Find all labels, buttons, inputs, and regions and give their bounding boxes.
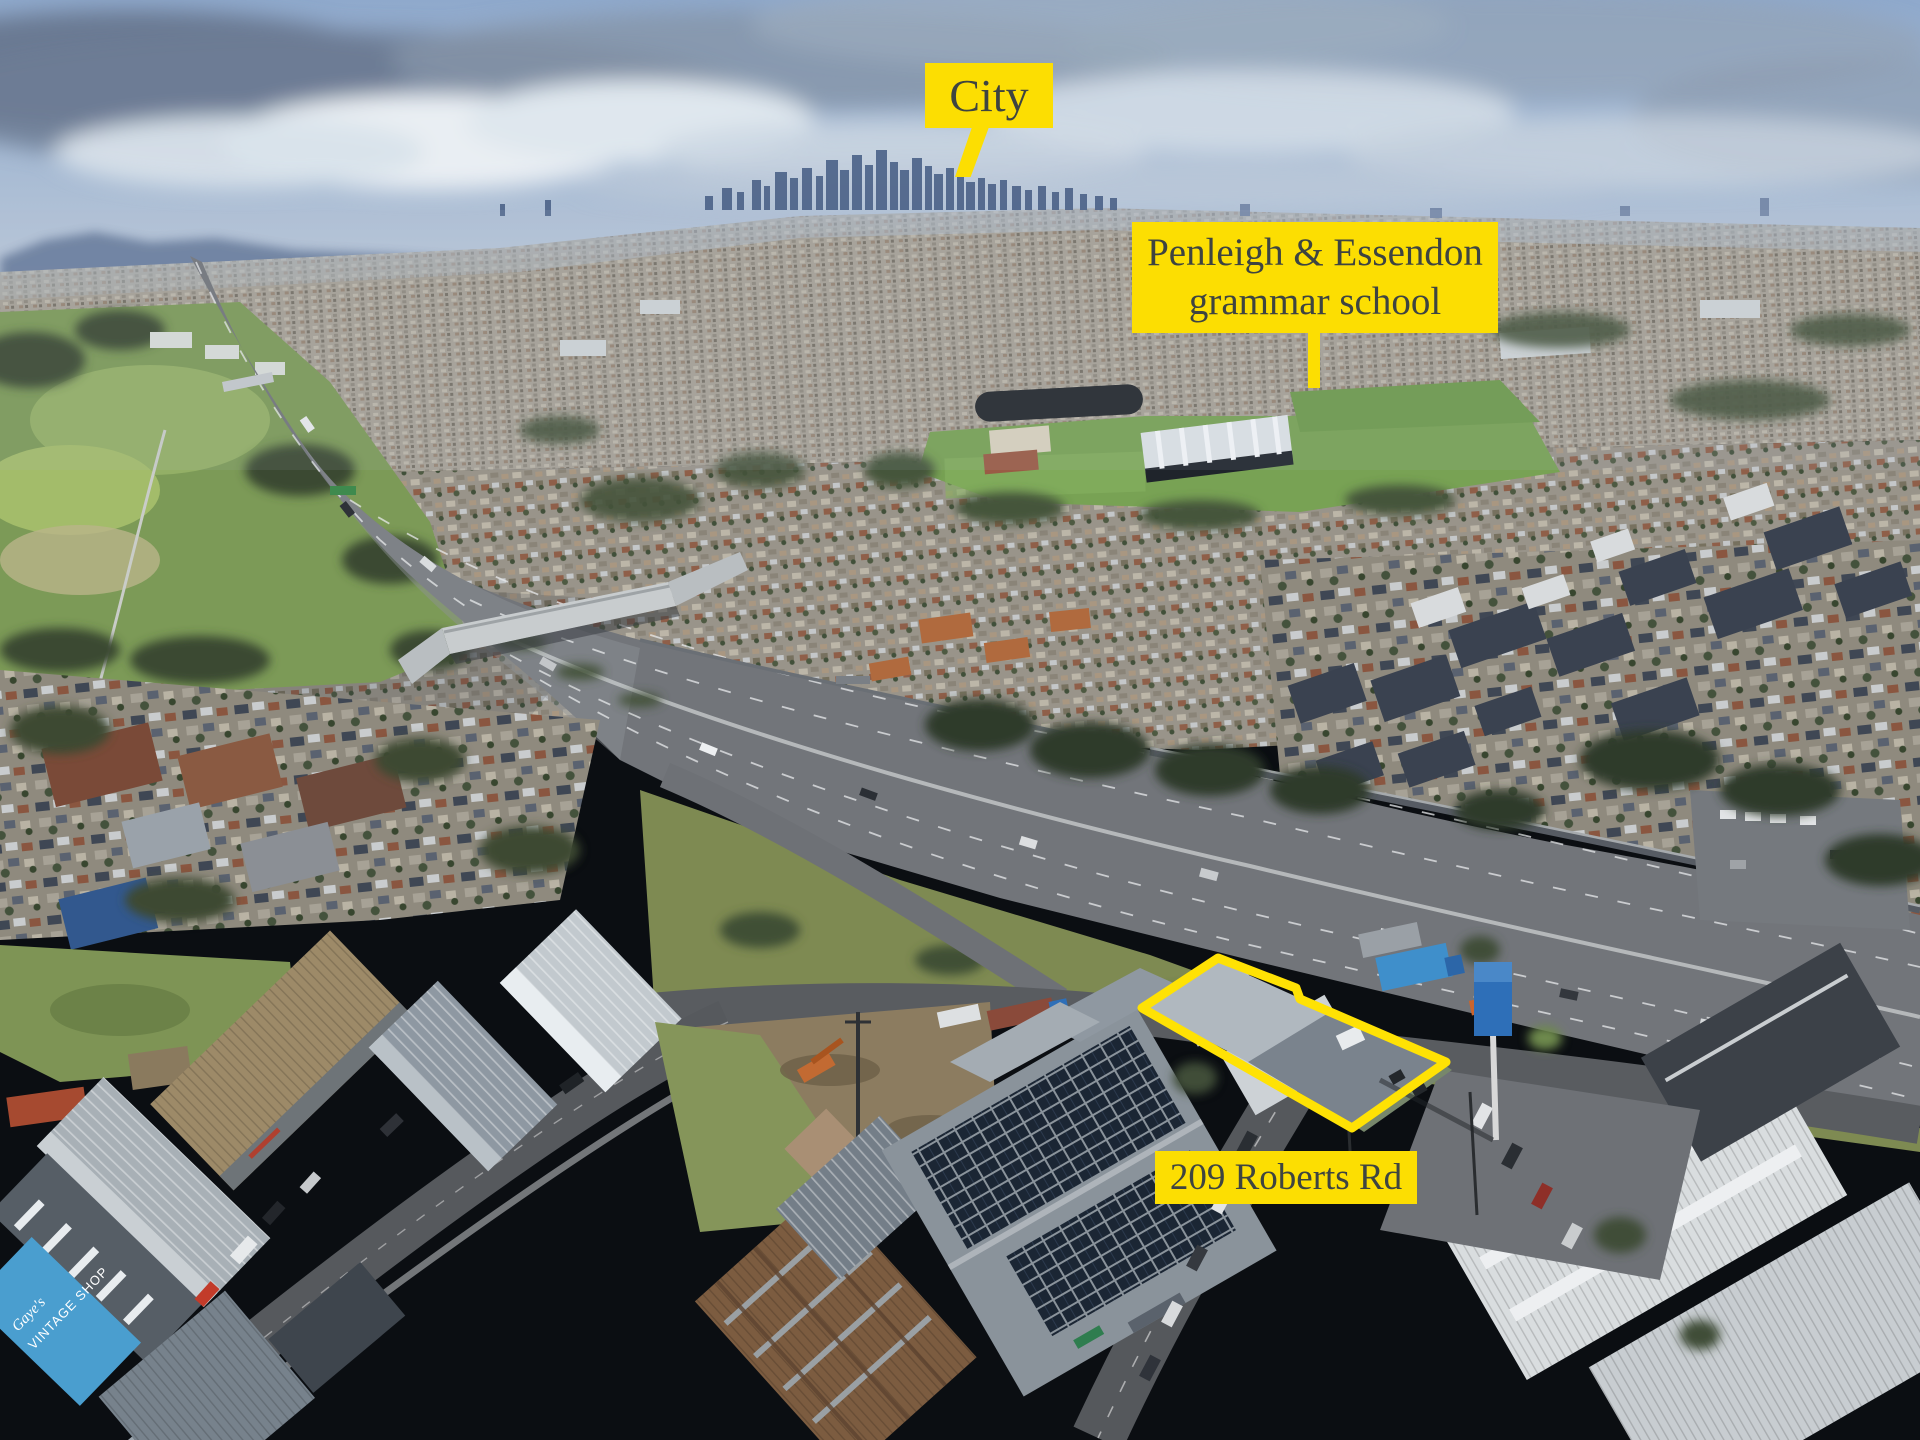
callout-school: Penleigh & Essendon grammar school xyxy=(1132,222,1498,333)
callout-city: City xyxy=(925,63,1053,128)
callout-city-label: City xyxy=(949,69,1028,122)
callout-school-line2: grammar school xyxy=(1189,280,1441,323)
callout-address-label: 209 Roberts Rd xyxy=(1170,1156,1402,1199)
callout-address: 209 Roberts Rd xyxy=(1155,1151,1417,1204)
aerial-photo: Gaye's VINTAGE SHOP xyxy=(0,0,1920,1440)
aerial-photo-art: Gaye's VINTAGE SHOP xyxy=(0,0,1920,1440)
callout-school-pointer xyxy=(1308,332,1320,388)
callout-school-line1: Penleigh & Essendon xyxy=(1147,231,1483,274)
